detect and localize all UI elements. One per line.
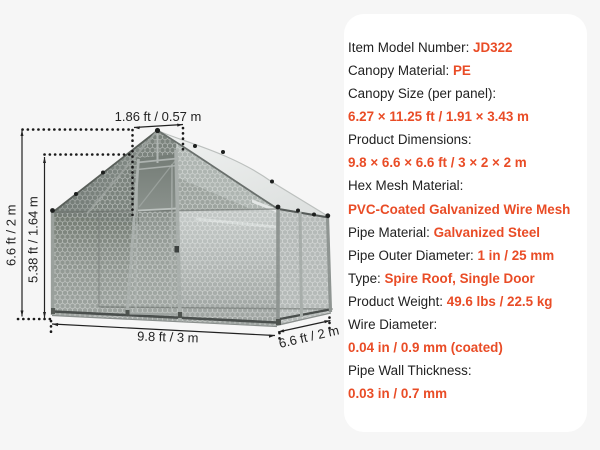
svg-text:9.8 ft / 3 m: 9.8 ft / 3 m	[137, 329, 199, 346]
svg-text:6.6 ft / 2 m: 6.6 ft / 2 m	[277, 322, 340, 350]
svg-text:6.6 ft / 2 m: 6.6 ft / 2 m	[4, 205, 19, 266]
svg-text:1.86 ft / 0.57 m: 1.86 ft / 0.57 m	[115, 109, 202, 124]
svg-text:5.38 ft / 1.64 m: 5.38 ft / 1.64 m	[26, 196, 41, 283]
